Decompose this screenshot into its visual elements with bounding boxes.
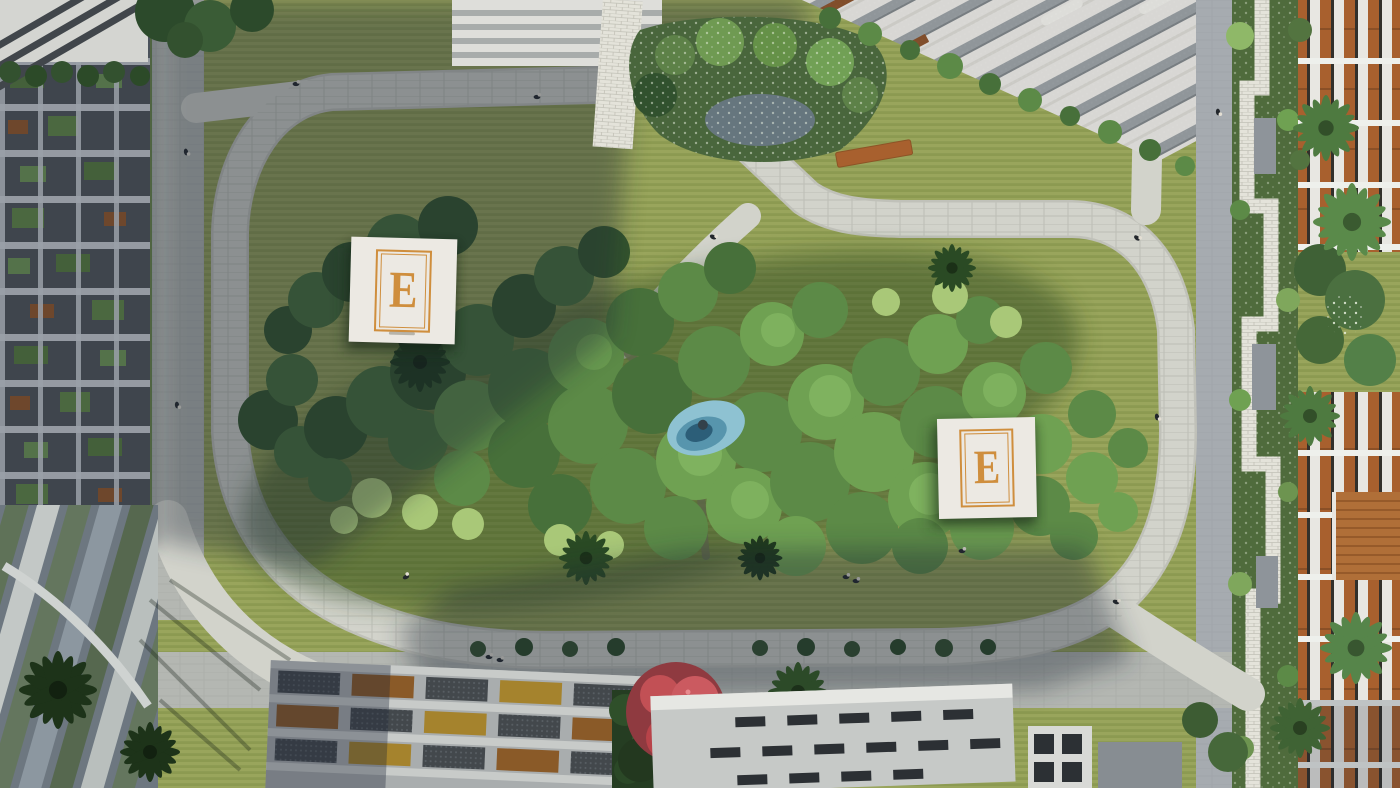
monogram-frame-inner: E (964, 433, 1009, 504)
palm-tree-icon (928, 244, 976, 292)
monogram-letter: E (388, 264, 418, 317)
estate-monogram-sign-2: E (937, 417, 1037, 519)
monogram-frame: E (959, 428, 1015, 507)
estate-monogram-sign-1: E (349, 237, 458, 345)
palm-tree-icon (19, 651, 97, 729)
scene-svg (0, 0, 1400, 788)
wood-deck (1332, 492, 1400, 580)
sign-scuff-mark (389, 332, 415, 336)
monogram-frame: E (374, 249, 432, 332)
building-bottom-a (265, 660, 646, 788)
palm-tree-icon (120, 722, 180, 782)
building-bottom-b (650, 684, 1015, 788)
monogram-frame-inner: E (379, 253, 427, 328)
monogram-letter: E (973, 444, 1000, 493)
aerial-courtyard-render: E E (0, 0, 1400, 788)
